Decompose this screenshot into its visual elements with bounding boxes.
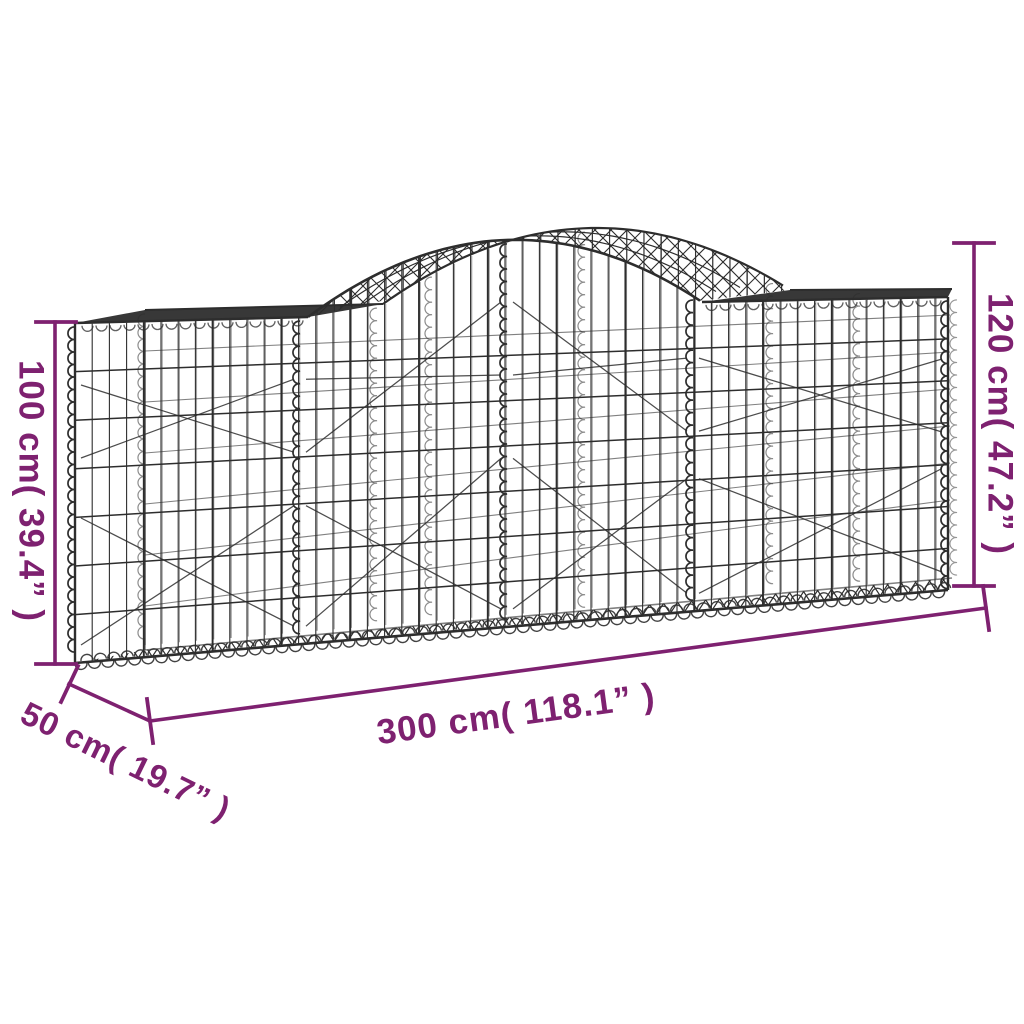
product-dimension-diagram: 100 cm( 39.4” ) 120 cm( 47.2” ) 300 cm( … [0, 0, 1024, 1024]
dimension-length: 300 cm( 118.1” ) [147, 586, 989, 752]
dimension-label-height-left: 100 cm( 39.4” ) [12, 360, 51, 622]
gabion-diagram-canvas: 100 cm( 39.4” ) 120 cm( 47.2” ) 300 cm( … [0, 0, 1024, 1024]
dimension-label-height-right: 120 cm( 47.2” ) [981, 293, 1020, 555]
dimension-line-depth [69, 684, 150, 721]
dimension-label-length: 300 cm( 118.1” ) [374, 676, 657, 752]
tick-start [61, 666, 78, 702]
dimension-height-left: 100 cm( 39.4” ) [12, 322, 77, 664]
gabion-basket-illustration [60, 195, 1014, 675]
dimension-depth: 50 cm( 19.7” ) [15, 666, 237, 828]
dimension-height-right: 120 cm( 47.2” ) [954, 243, 1020, 586]
